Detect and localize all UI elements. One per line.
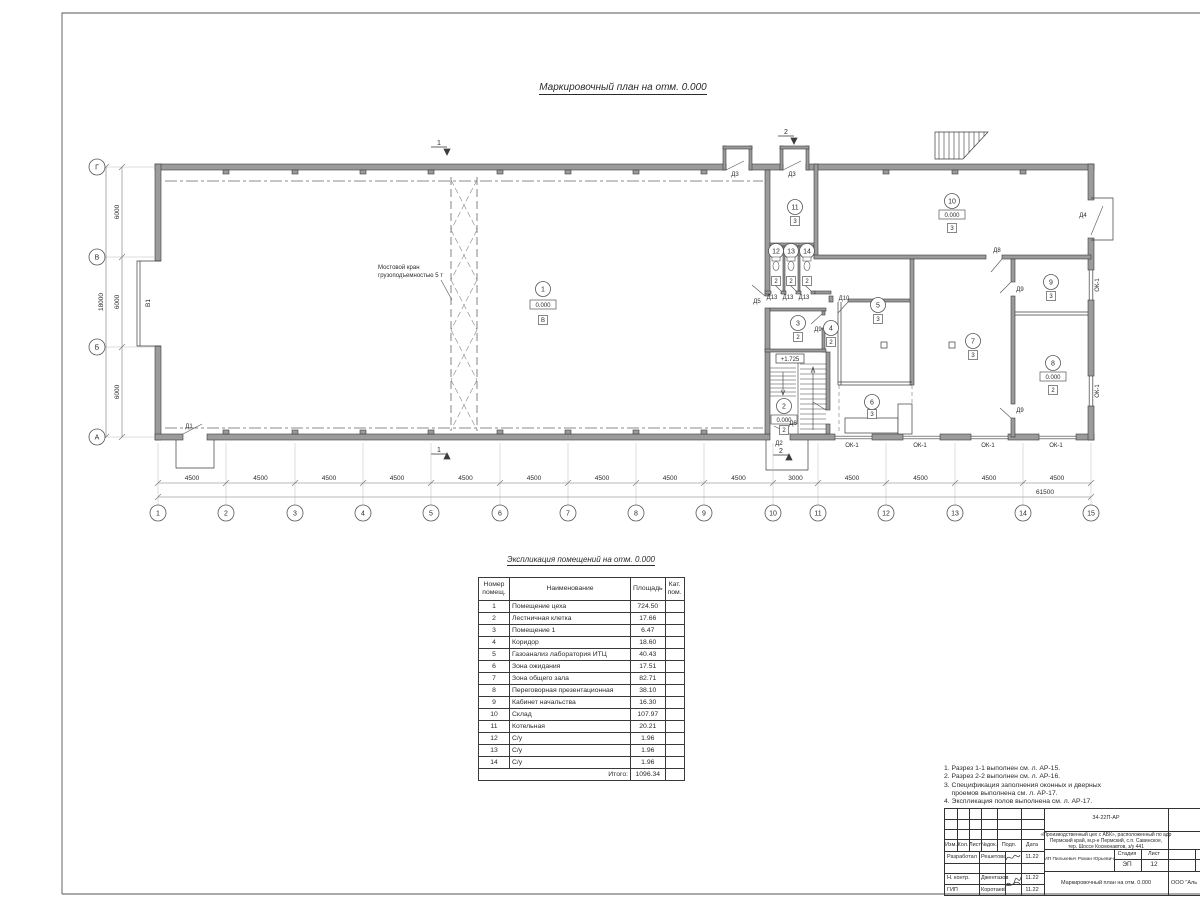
room-number: 8 [1051, 361, 1055, 368]
crane-label: Мостовой кран [378, 264, 420, 271]
door-label: Д9 [1016, 408, 1024, 414]
table-row: 8Переговорная презентационная38.10 [479, 685, 685, 697]
axis-label: 14 [1019, 511, 1027, 518]
dim-label: 6000 [114, 384, 121, 399]
svg-text:2: 2 [784, 129, 788, 136]
col-header-num: Номер помещ. [479, 578, 510, 601]
dim-label: 4500 [595, 475, 610, 482]
room-level: 0.000 [1045, 375, 1061, 381]
room-number: 5 [876, 303, 880, 310]
note-line: 2. Разрез 2-2 выполнен см. л. АР-16. [944, 773, 1101, 781]
wc-icon [773, 262, 779, 271]
door-label: Д5 [753, 299, 761, 305]
window-label: ОК-1 [1049, 443, 1063, 449]
pilaster [292, 170, 298, 174]
wc-icon [788, 262, 794, 271]
signature-icon [1005, 852, 1021, 863]
dim-label: 4500 [253, 475, 268, 482]
dim-label: 6000 [114, 294, 121, 309]
pilaster [223, 170, 229, 174]
stage-value: ЭП [1122, 861, 1131, 868]
customer: ИП Пилькевич Роман Юрьевич [1044, 857, 1114, 862]
axis-label: 4 [361, 511, 365, 518]
dim-label: 4500 [390, 475, 405, 482]
door-label: Д1 [185, 424, 193, 430]
pilaster [360, 430, 366, 434]
door-label: Д9 [1016, 287, 1024, 293]
window-label: ОК-1 [1095, 278, 1101, 292]
door-label: Д4 [1079, 213, 1087, 219]
dim-label: 4500 [845, 475, 860, 482]
room-number: 6 [870, 400, 874, 407]
table-row: 5Газоанализ лаборатория ИТЦ40.43 [479, 649, 685, 661]
table-row: 3Помещение 16.47 [479, 625, 685, 637]
axis-label: В [95, 255, 100, 262]
col-header-cat: Кат. пом. [665, 578, 684, 601]
dim-label: 4500 [527, 475, 542, 482]
room-number: 1 [541, 287, 545, 294]
axis-label: А [95, 435, 100, 442]
svg-text:1: 1 [437, 447, 441, 454]
door-label: Д2 [775, 441, 783, 447]
axis-label: 2 [224, 511, 228, 518]
door-label: Д3 [731, 172, 739, 178]
col-header-area: Площадь [631, 578, 666, 601]
table-row: 1Помещение цеха724.50 [479, 601, 685, 613]
project-code: 34-22П-АР [1092, 815, 1119, 821]
room-explication-table: Номер помещ. Наименование Площадь Кат. п… [478, 577, 685, 781]
room-number: 12 [772, 249, 780, 256]
dim-label: 4500 [458, 475, 473, 482]
role-2: ГИП [947, 887, 958, 893]
table-title: Экспликация помещений на отм. 0.000 [476, 555, 686, 564]
room-number: 11 [791, 205, 798, 212]
pilaster [633, 170, 639, 174]
svg-text:1: 1 [437, 140, 441, 147]
table-row: 10Склад107.97 [479, 709, 685, 721]
wc-icon [787, 257, 795, 261]
axis-label: 3 [293, 511, 297, 518]
pilaster [633, 430, 639, 434]
axis-label: 12 [882, 511, 890, 518]
wc-icon [804, 262, 810, 271]
door-label: Д3 [788, 172, 796, 178]
table-row: 12С/у1.96 [479, 733, 685, 745]
total-value: 1096.34 [631, 769, 666, 781]
stair-level: +1.725 [781, 357, 800, 363]
room-number: 14 [803, 249, 811, 256]
door-label: Д6 [789, 421, 797, 427]
table-row: 6Зона ожидания17.51 [479, 661, 685, 673]
pilaster [565, 430, 571, 434]
title-block: 34-22П-АР «Производственный цех с АБК», … [944, 808, 1200, 896]
door-leaves [183, 161, 1103, 434]
window-label: ОК-1 [981, 443, 995, 449]
dim-label: 4500 [731, 475, 746, 482]
room-level: 0.000 [535, 303, 551, 309]
axis-label: 8 [634, 511, 638, 518]
crane: Мостовой кран грузоподъемностью 5 т [165, 177, 763, 431]
stage-label: Стадия [1118, 851, 1137, 857]
gate-label: В1 [145, 299, 152, 307]
axis-label: 7 [566, 511, 570, 518]
room-category: В [541, 318, 545, 324]
dim-label: 4500 [913, 475, 928, 482]
svg-text:2: 2 [779, 448, 783, 455]
notes: 1. Разрез 1-1 выполнен см. л. АР-15.2. Р… [944, 765, 1101, 806]
room-number: 9 [1049, 280, 1053, 287]
role-0: Разработал [947, 854, 977, 860]
room-level: 0.000 [944, 213, 960, 219]
axis-label: 6 [498, 511, 502, 518]
room-number: 4 [829, 326, 833, 333]
door-label: Д13 [767, 295, 778, 301]
table-row: 13С/у1.96 [479, 745, 685, 757]
pilaster [952, 170, 958, 174]
pilaster [428, 170, 434, 174]
axis-label: Г [95, 165, 99, 172]
table-row: 7Зона общего зала82.71 [479, 673, 685, 685]
room-number: 13 [787, 249, 795, 256]
thin-linework [137, 132, 1113, 470]
axis-label: 15 [1087, 511, 1095, 518]
dim-label: 4500 [663, 475, 678, 482]
room-number: 3 [796, 321, 800, 328]
left-total-dim: 18000 [98, 293, 105, 311]
total-label: Итого: [479, 769, 631, 781]
door-label: Д10 [839, 296, 850, 302]
room-number: 7 [971, 339, 975, 346]
door-label: Д13 [783, 295, 794, 301]
dim-label: 4500 [982, 475, 997, 482]
door-label: Д8 [993, 248, 1001, 254]
pilaster [360, 170, 366, 174]
axis-label: Б [95, 345, 100, 352]
table-row: 9Кабинет начальства16.30 [479, 697, 685, 709]
pilaster [1020, 170, 1026, 174]
dim-label: 4500 [322, 475, 337, 482]
axis-label: 5 [429, 511, 433, 518]
note-line: 4. Экспликация полов выполнена см. л. АР… [944, 798, 1101, 806]
pilaster [565, 170, 571, 174]
pilaster [701, 170, 707, 174]
door-label: Д13 [799, 295, 810, 301]
door-label: Д9 [814, 327, 822, 333]
col-header-name: Наименование [510, 578, 631, 601]
table-total-row: Итого: 1096.34 [479, 769, 685, 781]
note-line: 3. Спецификация заполнения оконных и две… [944, 782, 1101, 790]
pilaster [497, 430, 503, 434]
sheet-label: Лист [1148, 851, 1160, 857]
role-1: Н. контр. [947, 875, 970, 881]
room-number: 2 [782, 404, 786, 411]
pilaster [497, 170, 503, 174]
total-dim: 61500 [1036, 489, 1054, 496]
dim-label: 4500 [185, 475, 200, 482]
table-header-row: Номер помещ. Наименование Площадь Кат. п… [479, 578, 685, 601]
plan-labels: 4500450045004500450045004500450045003000… [89, 159, 1101, 521]
wc-icon [803, 257, 811, 261]
table-row: 2Лестничная клетка17.66 [479, 613, 685, 625]
window-label: ОК-1 [913, 443, 927, 449]
room-number: 10 [948, 199, 956, 206]
axis-label: 11 [814, 511, 821, 518]
project-desc-3: тер. Шоссе Космонавтов, з/у 441 [1068, 844, 1144, 850]
window-label: ОК-1 [845, 443, 859, 449]
window-label: ОК-1 [1095, 384, 1101, 398]
sheet-value: 12 [1150, 861, 1157, 868]
note-line: 1. Разрез 1-1 выполнен см. л. АР-15. [944, 765, 1101, 773]
table-row: 4Коридор18.60 [479, 637, 685, 649]
svg-text:грузоподъемностью 5 т: грузоподъемностью 5 т [378, 273, 443, 279]
organization: ООО "Аль [1171, 880, 1197, 886]
axis-label: 13 [951, 511, 959, 518]
dim-label: 6000 [114, 204, 121, 219]
doc-title: Маркировочный план на отм. 0.000 [1061, 880, 1151, 886]
pilaster [428, 430, 434, 434]
dim-label: 3000 [788, 475, 803, 482]
note-line: проемов выполнена см. л. АР-17. [944, 790, 1101, 798]
axis-label: 9 [702, 511, 706, 518]
walls [155, 146, 1094, 440]
wc-icon [772, 257, 780, 261]
pilaster [223, 430, 229, 434]
section-marks: 1 1 2 2 [431, 129, 797, 460]
table-row: 14С/у1.96 [479, 757, 685, 769]
axis-label: 10 [769, 511, 777, 518]
table-row: 11Котельная20.21 [479, 721, 685, 733]
axis-label: 1 [156, 511, 160, 518]
pilaster [883, 170, 889, 174]
dim-label: 4500 [1050, 475, 1065, 482]
pilaster [701, 430, 707, 434]
pilaster [292, 430, 298, 434]
signature-icon [1003, 872, 1023, 894]
